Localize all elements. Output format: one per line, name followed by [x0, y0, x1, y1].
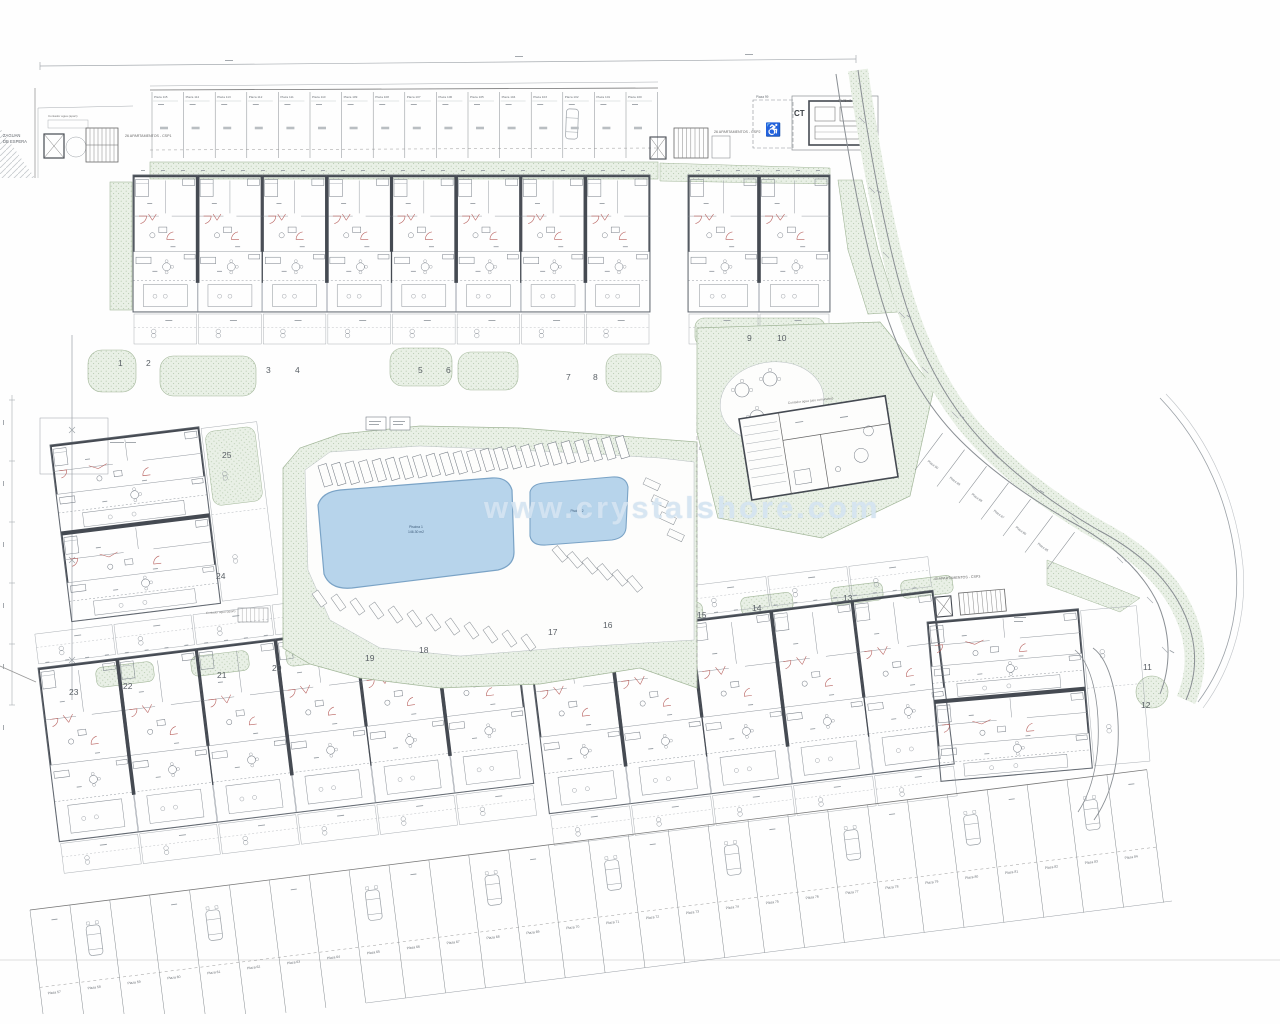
- dim-text-mark: [441, 170, 445, 171]
- stall-divider: [947, 795, 957, 872]
- door-swing-arc: [333, 216, 341, 223]
- sofa: [449, 721, 465, 729]
- dim-text-mark: [561, 170, 565, 171]
- apartment-unit: [521, 175, 586, 312]
- stall-divider: [30, 910, 40, 987]
- table: [356, 263, 364, 271]
- green-area: [110, 182, 132, 310]
- table: [550, 263, 558, 271]
- dim-text-mark: [591, 816, 598, 818]
- dim-text-mark: [295, 320, 302, 321]
- kitchen: [851, 701, 862, 707]
- stall-divider: [1077, 857, 1084, 913]
- table: [721, 263, 729, 271]
- door-swing-arc: [591, 216, 599, 223]
- plan-label: Contador agua (apart): [206, 609, 236, 615]
- dim-text-mark: [672, 806, 679, 808]
- apartment-unit: [771, 600, 873, 783]
- stall-divider: [1047, 532, 1075, 569]
- stall-divider: [997, 867, 1004, 923]
- sofa: [524, 257, 539, 264]
- dim-text-mark: [535, 203, 540, 204]
- dim-text-mark: [341, 170, 345, 171]
- shower: [649, 691, 658, 697]
- stall-divider: [828, 810, 838, 887]
- stall-divider: [548, 845, 558, 922]
- dim-text-mark: [530, 859, 536, 861]
- apartment-unit: [262, 175, 327, 312]
- stall-divider: [159, 972, 164, 1014]
- door-swing-arc: [268, 216, 276, 223]
- shower: [157, 719, 166, 725]
- shower: [990, 646, 998, 652]
- sofa: [787, 712, 803, 720]
- bed: [691, 180, 704, 197]
- dim-text-mark: [442, 104, 448, 105]
- bed: [855, 603, 870, 621]
- block-number: 16: [603, 620, 613, 630]
- shower: [223, 227, 231, 233]
- plan-label: DE ESPERA: [3, 139, 27, 144]
- dim-text-mark: [808, 577, 815, 579]
- stall-divider: [981, 483, 1009, 520]
- dim-text-mark: [179, 834, 186, 836]
- party-wall: [325, 176, 329, 283]
- dim-text-mark: [171, 904, 177, 906]
- kitchen: [378, 254, 389, 259]
- dim-text-mark: [301, 170, 305, 171]
- stall-divider: [798, 892, 805, 948]
- apartment-unit: [927, 609, 1085, 702]
- door-swing-arc: [621, 681, 629, 689]
- kitchen: [689, 721, 700, 727]
- sofa: [762, 257, 777, 264]
- terrace: [699, 285, 747, 307]
- dim-text-mark: [648, 748, 653, 750]
- dim-text-mark: [282, 271, 287, 272]
- dim-text-mark: [1014, 621, 1023, 622]
- kitchen: [572, 254, 583, 259]
- plan-label: Contador agua (apart): [48, 114, 78, 118]
- door-swing-arc: [50, 718, 58, 726]
- door-swing-arc: [208, 699, 216, 707]
- table: [168, 765, 177, 774]
- dim-text-mark: [816, 170, 820, 171]
- stall-label: Plaza 62: [247, 965, 261, 971]
- dim-text-mark: [716, 170, 720, 171]
- stall-divider: [598, 917, 605, 973]
- sofa: [868, 702, 884, 710]
- dim-text-mark: [85, 458, 90, 460]
- dim-text-mark: [281, 170, 285, 171]
- block-number: 17: [548, 627, 558, 637]
- stall-label: Plaza 111: [280, 95, 294, 99]
- dim-text-mark: [712, 653, 717, 655]
- dim-text-mark: [190, 104, 196, 105]
- stall-divider: [668, 830, 678, 907]
- road-tick: [1117, 557, 1123, 563]
- stall-label: Plaza 81: [1005, 869, 1019, 875]
- block-number: 2: [146, 358, 151, 368]
- dim-text-mark: [775, 203, 780, 204]
- stall-divider: [40, 987, 43, 1014]
- stall-divider: [1037, 862, 1044, 918]
- door-swing-arc: [797, 232, 805, 239]
- car-icon: [723, 840, 741, 875]
- terrace: [143, 285, 187, 307]
- kitchen: [184, 254, 195, 259]
- stall-divider: [868, 805, 878, 882]
- door-swing-arc: [864, 651, 872, 659]
- dim-text-mark: [174, 742, 179, 744]
- stall-label: Plaza 66: [406, 945, 420, 951]
- dim-text-mark: [834, 786, 841, 788]
- dim-text-mark: [393, 747, 398, 749]
- toilet: [464, 690, 470, 696]
- terrace: [964, 754, 1068, 776]
- car-icon: [565, 109, 578, 139]
- dim-text-mark: [586, 724, 591, 726]
- dim-text-mark: [139, 691, 144, 693]
- dim-text-mark: [601, 170, 605, 171]
- dim-text-mark: [51, 919, 57, 921]
- stall-divider: [1003, 499, 1031, 536]
- door-swing-arc: [765, 216, 773, 223]
- block-number: 23: [69, 687, 79, 697]
- dim-text-mark: [421, 170, 425, 171]
- dim-text-mark: [369, 421, 381, 422]
- dim-text-mark: [361, 170, 365, 171]
- toilet: [538, 233, 543, 238]
- stall-divider: [80, 982, 84, 1014]
- dim-text-mark: [915, 776, 922, 778]
- block-number: 8: [593, 372, 598, 382]
- stall-label: Plaza 69: [526, 930, 540, 936]
- terrace: [147, 789, 204, 823]
- dim-text-mark: [910, 684, 915, 686]
- car-icon: [843, 825, 861, 860]
- green-area: [160, 356, 256, 396]
- dim-text-mark: [3, 664, 4, 669]
- block-number: 4: [295, 365, 300, 375]
- door-swing-arc: [425, 232, 433, 239]
- stall-label: Plaza 59: [127, 980, 141, 986]
- stall-divider: [349, 870, 359, 947]
- table: [486, 263, 494, 271]
- green-area: [88, 350, 136, 392]
- dim-text-mark: [156, 776, 161, 778]
- stall-divider: [199, 967, 205, 1014]
- sofa: [201, 257, 216, 264]
- building-left-24-25: [50, 420, 278, 622]
- dim-text-mark: [650, 843, 656, 845]
- dim-text-mark: [541, 170, 545, 171]
- sofa: [544, 742, 560, 750]
- ct-label: CT: [794, 109, 805, 118]
- sofa: [588, 257, 603, 264]
- dim-text-mark: [756, 170, 760, 171]
- handicap-stall: Plaza 99♿: [753, 95, 793, 148]
- dim-text-mark: [618, 320, 625, 321]
- stall-label: Plaza 109: [344, 95, 358, 99]
- stall-label: Plaza 84: [1124, 854, 1138, 860]
- party-wall: [851, 601, 869, 737]
- dim-text-mark: [632, 104, 638, 105]
- dim-text-mark: [100, 844, 107, 846]
- stall-divider: [788, 815, 798, 892]
- stall-divider: [1027, 785, 1037, 862]
- dim-text-mark: [495, 795, 502, 797]
- dim-text-mark: [241, 170, 245, 171]
- stall-label: Plaza 83: [1085, 859, 1099, 865]
- stall-divider: [837, 887, 844, 943]
- dim-text-mark: [553, 320, 560, 321]
- door-swing-arc: [783, 661, 791, 669]
- car-icon: [963, 810, 981, 845]
- bed: [394, 180, 407, 197]
- pool2-label: Piscina 2: [571, 509, 584, 513]
- door-swing-arc: [153, 556, 161, 564]
- dim-text-mark: [476, 271, 481, 272]
- kitchen: [203, 567, 214, 573]
- apartment-unit: [327, 175, 392, 312]
- shower: [892, 661, 901, 667]
- sofa: [370, 731, 386, 739]
- table: [661, 737, 670, 746]
- apartment-unit: [456, 175, 521, 312]
- garden-strip: [201, 422, 278, 602]
- sofa: [330, 257, 345, 264]
- dim-text-mark: [95, 752, 100, 754]
- table: [580, 747, 589, 756]
- car-icon: [364, 885, 382, 920]
- door-swing-arc: [90, 736, 98, 744]
- dim-text-mark: [153, 625, 160, 627]
- dim-text-mark: [800, 246, 805, 247]
- stall-divider: [1147, 770, 1157, 847]
- green-area: [458, 352, 518, 390]
- toilet: [107, 564, 113, 570]
- toilet: [602, 233, 607, 238]
- kitchen: [192, 478, 203, 484]
- scan-artifact-line: [0, 959, 1280, 961]
- dim-text-mark: [142, 480, 147, 482]
- aseo-box: [390, 417, 410, 430]
- dim-text-mark: [889, 567, 896, 569]
- dim-text-mark: [874, 633, 879, 635]
- door-swing-arc: [486, 688, 494, 696]
- dim-text-mark: [253, 733, 258, 735]
- stall-divider: [469, 855, 479, 932]
- dim-text-mark: [605, 271, 610, 272]
- stall-divider: [1117, 852, 1124, 908]
- stall-divider: [399, 942, 406, 998]
- dim-text-mark: [201, 170, 205, 171]
- stall-label: Plaza 110: [312, 95, 326, 99]
- table: [292, 263, 300, 271]
- block-number: 1: [118, 358, 123, 368]
- csp2-label: 26 APARTAMENTOS - CSP2: [714, 130, 760, 134]
- table: [247, 755, 256, 764]
- stall-divider: [439, 937, 446, 993]
- shower: [997, 726, 1005, 732]
- dim-text-mark: [230, 320, 237, 321]
- apartment-unit: [688, 175, 759, 312]
- top-parking-row: Plaza 115Plaza 114Plaza 113Plaza 112Plaz…: [150, 88, 658, 179]
- dim-text-mark: [488, 320, 495, 321]
- dim-text-mark: [540, 271, 545, 272]
- toilet: [147, 729, 153, 735]
- dim-text-mark: [110, 442, 124, 443]
- stall-label: Plaza 115: [154, 95, 168, 99]
- dim-text-mark: [429, 246, 434, 247]
- stall-label: Plaza 60: [167, 975, 181, 981]
- block-number: 20: [272, 663, 282, 673]
- kitchen: [511, 711, 522, 717]
- stall-label: Plaza 102: [565, 95, 579, 99]
- dim-text-mark: [581, 170, 585, 171]
- dim-text-mark: [77, 786, 82, 788]
- terrace: [558, 771, 616, 806]
- kitchen: [432, 721, 443, 727]
- stall-label: Plaza 77: [845, 890, 859, 896]
- dim-text-mark: [621, 170, 625, 171]
- bed: [329, 180, 342, 197]
- table: [326, 746, 335, 755]
- stall-divider: [748, 820, 758, 897]
- kitchen: [249, 254, 260, 259]
- terrace: [93, 589, 196, 616]
- stall-label: Plaza 89: [949, 476, 961, 487]
- stall-label: Plaza 70: [566, 925, 580, 931]
- terrace: [720, 751, 778, 786]
- party-wall: [262, 176, 263, 283]
- kitchen: [274, 740, 285, 746]
- dim-text-mark: [984, 753, 989, 754]
- dim-text-mark: [490, 704, 495, 706]
- terrace: [639, 761, 697, 796]
- dim-text-mark: [3, 603, 4, 608]
- dim-text-mark: [724, 320, 731, 321]
- dim-text-mark: [470, 203, 475, 204]
- toilet: [473, 233, 478, 238]
- stall-divider: [190, 890, 200, 967]
- stall-divider: [917, 877, 924, 933]
- stall-label: Plaza 88: [971, 492, 983, 503]
- dim-text-mark: [332, 723, 337, 725]
- shower: [417, 227, 425, 233]
- toilet: [68, 739, 74, 745]
- dim-text-mark: [161, 170, 165, 171]
- toilet: [721, 691, 727, 697]
- stall-divider: [119, 977, 124, 1014]
- stall-label: Plaza 103: [533, 95, 547, 99]
- block-number: 15: [697, 610, 707, 620]
- dim-text-mark: [346, 271, 351, 272]
- site-plan-drawing: Plaza 115Plaza 114Plaza 113Plaza 112Plaz…: [0, 0, 1280, 1024]
- toilet: [97, 475, 103, 481]
- stall-divider: [628, 835, 638, 912]
- apartment-unit: [690, 610, 792, 793]
- dim-text-mark: [411, 104, 417, 105]
- stall-divider: [1067, 780, 1077, 857]
- dim-text-mark: [276, 203, 281, 204]
- stall-divider: [588, 840, 598, 917]
- stall-divider: [558, 922, 565, 978]
- door-swing-arc: [490, 232, 498, 239]
- door-swing-arc: [1026, 723, 1034, 731]
- party-wall: [934, 687, 1086, 704]
- table: [484, 726, 493, 735]
- dim-text-mark: [795, 320, 802, 321]
- shower: [730, 681, 739, 687]
- stall-divider: [70, 905, 80, 982]
- dim-text-mark: [472, 738, 477, 740]
- apartment-unit: [392, 175, 457, 312]
- dim-text-mark: [60, 701, 65, 703]
- car-icon: [205, 905, 223, 940]
- stall-label: Plaza 80: [965, 874, 979, 880]
- dim-text-mark: [152, 271, 157, 272]
- stall-divider: [987, 790, 997, 867]
- stall-label: Plaza 68: [486, 935, 500, 941]
- stall-divider: [957, 872, 964, 928]
- bed: [774, 613, 789, 631]
- toilet: [980, 730, 986, 736]
- dim-text-mark: [696, 170, 700, 171]
- dim-text-mark: [217, 271, 222, 272]
- car-icon: [484, 870, 502, 905]
- stall-label: Plaza 65: [367, 950, 381, 956]
- block-number: 18: [419, 645, 429, 655]
- stall-label: Plaza 79: [925, 880, 939, 886]
- door-swing-arc: [540, 690, 548, 698]
- dim-text-mark: [253, 104, 259, 105]
- sofa: [691, 257, 706, 264]
- dim-text-mark: [316, 104, 322, 105]
- dim-text-mark: [393, 424, 403, 425]
- block-number: 19: [365, 653, 375, 663]
- toilet: [559, 711, 565, 717]
- block-number: 3: [266, 365, 271, 375]
- shower: [315, 700, 324, 706]
- block-number: 22: [123, 681, 133, 691]
- dim-text-mark: [753, 796, 760, 798]
- party-wall: [757, 176, 761, 283]
- dim-text-mark: [147, 203, 152, 204]
- dim-text-mark: [969, 715, 974, 716]
- car-icon: [1082, 795, 1100, 830]
- kitchen: [353, 730, 364, 736]
- csp1-label: 26 APARTAMENTOS - CSP1: [125, 134, 171, 138]
- dim-text-mark: [569, 104, 575, 105]
- toilet: [279, 233, 284, 238]
- stall-label: Plaza 87: [993, 509, 1005, 520]
- toilet: [150, 233, 155, 238]
- stall-divider: [509, 850, 519, 927]
- kitchen: [1069, 655, 1080, 660]
- shower: [787, 227, 795, 233]
- dim-text-mark: [113, 589, 118, 591]
- stall-label: Plaza 78: [885, 885, 899, 891]
- stall-label: Plaza 100: [628, 95, 642, 99]
- dim-text-mark: [515, 56, 523, 57]
- stall-divider: [708, 825, 718, 902]
- dim-text-mark: [165, 320, 172, 321]
- shower: [547, 227, 555, 233]
- aseo-box: [366, 417, 386, 430]
- dim-text-mark: [3, 542, 4, 547]
